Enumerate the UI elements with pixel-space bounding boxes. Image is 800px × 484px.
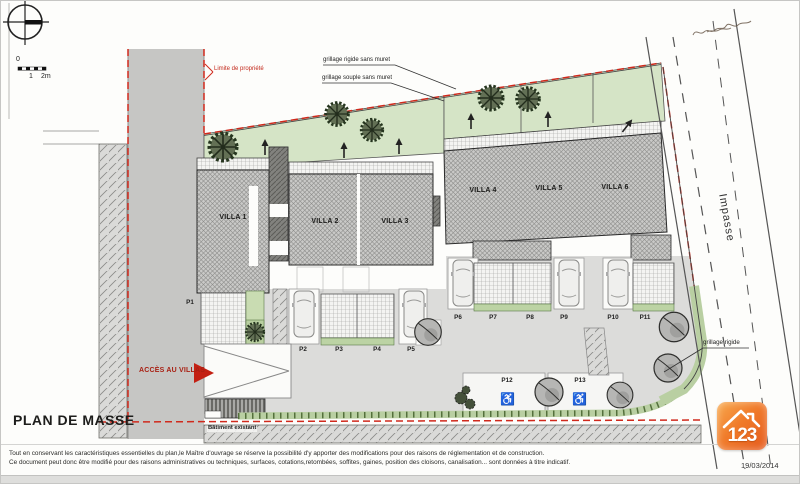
villa-5-label: VILLA 5 (523, 185, 575, 192)
agency-logo: 123 (717, 402, 767, 450)
parking-p13-label: P13 (569, 378, 591, 384)
disclaimer-line-1: Tout en conservant les caractéristiques … (9, 451, 544, 457)
footer-separator (1, 444, 799, 445)
parking-p2-label: P2 (292, 347, 314, 353)
parking-p5-label: P5 (400, 347, 422, 353)
label-batiment-existant: Bâtiment existant (207, 426, 257, 432)
parking-p4-label: P4 (366, 347, 388, 353)
parking-p12-label: P12 (496, 378, 518, 384)
villa-2-label: VILLA 2 (299, 218, 351, 225)
parking-p10-label: P10 (602, 315, 624, 321)
label-grillage-rigide-sans-muret: grillage rigide sans muret (323, 57, 390, 63)
compass-icon (3, 1, 49, 45)
parking-p8-label: P8 (519, 315, 541, 321)
scale-one: 1 (29, 73, 33, 80)
villa-4-label: VILLA 4 (457, 187, 509, 194)
bottom-strip (1, 475, 799, 484)
scale-bar (18, 67, 46, 70)
wheelchair-icon: ♿ (500, 392, 515, 406)
label-acces-villas: ACCÈS AU VILLAS (139, 367, 205, 374)
site-plan-sheet: PLAN DE MASSE 0 1 2m Limite de propriété… (0, 0, 800, 484)
page-title: PLAN DE MASSE (13, 413, 135, 427)
villa-1-label: VILLA 1 (207, 214, 259, 221)
label-limite-propriete: Limite de propriété (214, 66, 264, 72)
plan-date: 19/03/2014 (741, 462, 779, 470)
parking-p6-label: P6 (447, 315, 469, 321)
label-grillage-souple-sans-muret: grillage souple sans muret (322, 75, 392, 81)
parking-p3-label: P3 (328, 347, 350, 353)
villa-3-label: VILLA 3 (369, 218, 421, 225)
parking-p7-label: P7 (482, 315, 504, 321)
villa-6-label: VILLA 6 (589, 184, 641, 191)
parking-p11-label: P11 (634, 315, 656, 321)
parking-p9-label: P9 (553, 315, 575, 321)
scale-two-m: 2m (41, 73, 51, 80)
logo-number: 123 (717, 425, 767, 447)
access-road (128, 49, 204, 439)
parking-p1-label: P1 (179, 300, 201, 306)
disclaimer-line-2: Ce document peut donc être modifié pour … (9, 460, 570, 466)
handwritten-note (693, 21, 751, 35)
wheelchair-icon: ♿ (572, 392, 587, 406)
scale-zero: 0 (16, 56, 20, 63)
label-grillage-rigide: grillage rigide (703, 340, 740, 346)
